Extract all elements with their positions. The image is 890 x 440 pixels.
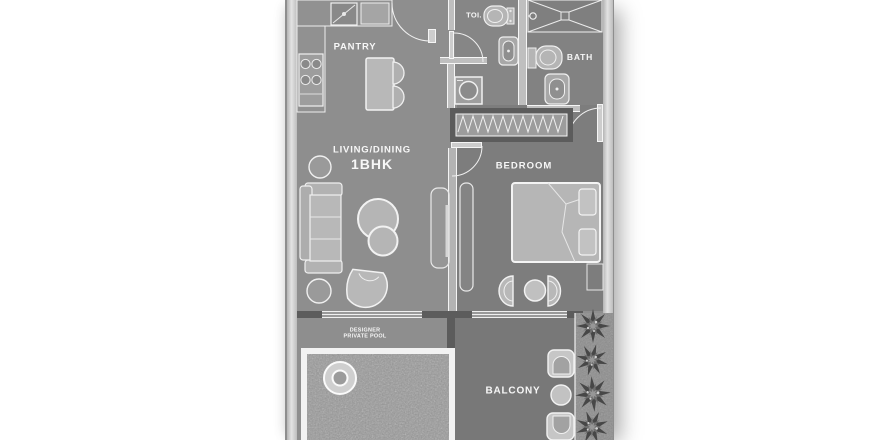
washing-machine-icon (455, 77, 482, 104)
plant-icon (576, 309, 610, 343)
room-label-living-sub: 1BHK (351, 156, 393, 172)
room-label-bedroom: BEDROOM (496, 162, 553, 173)
dining-chair (393, 86, 404, 108)
balcony-chair (547, 413, 574, 440)
nightstand (587, 264, 603, 290)
dining-chair (393, 62, 404, 84)
side-table (307, 279, 331, 303)
bedroom-console (460, 183, 473, 291)
room-label-balcony: BALCONY (485, 385, 540, 397)
side-table (525, 280, 546, 301)
room-label-toilet: TOI. (466, 12, 482, 21)
kitchen-sink-icon (331, 3, 357, 25)
bed (512, 183, 600, 262)
pillow (579, 189, 596, 215)
floor-plan: PANTRY TOI. BATH LIVING/DINING 1BHK BEDR… (285, 0, 614, 440)
lounge-chair (499, 276, 513, 306)
toilet-icon (484, 6, 514, 26)
balcony-chair (548, 350, 574, 377)
room-label-pantry: PANTRY (334, 43, 377, 54)
armchair (341, 263, 391, 313)
toilet-door-arc (454, 33, 483, 62)
room-label-bath: BATH (567, 53, 593, 63)
washbasin-icon (499, 37, 518, 65)
bedroom-door-arc (452, 146, 482, 176)
planter-strip (568, 309, 614, 440)
floor-plan-screenshot: PANTRY TOI. BATH LIVING/DINING 1BHK BEDR… (0, 0, 890, 440)
side-table (309, 156, 331, 178)
pool-label-line2: PRIVATE POOL (344, 333, 387, 339)
furniture-overlay (285, 0, 614, 440)
coffee-table-small (369, 227, 398, 256)
room-label-living: LIVING/DINING (333, 146, 411, 157)
room-label-pool: DESIGNER PRIVATE POOL (344, 327, 387, 339)
entry-door-arc (392, 3, 430, 41)
dining-table (366, 58, 394, 110)
sofa (300, 183, 342, 273)
refrigerator-icon (361, 3, 389, 24)
tv-unit (431, 188, 449, 268)
shower-icon (528, 0, 602, 32)
toilet-icon (528, 46, 562, 69)
lounge-chair (548, 276, 561, 306)
stove-icon (299, 54, 323, 106)
pillow (579, 229, 596, 255)
balcony-table (551, 385, 571, 405)
washbasin-icon (545, 74, 569, 104)
wardrobe-icon (450, 108, 573, 142)
pool (301, 348, 455, 440)
swim-ring-icon (324, 362, 356, 394)
